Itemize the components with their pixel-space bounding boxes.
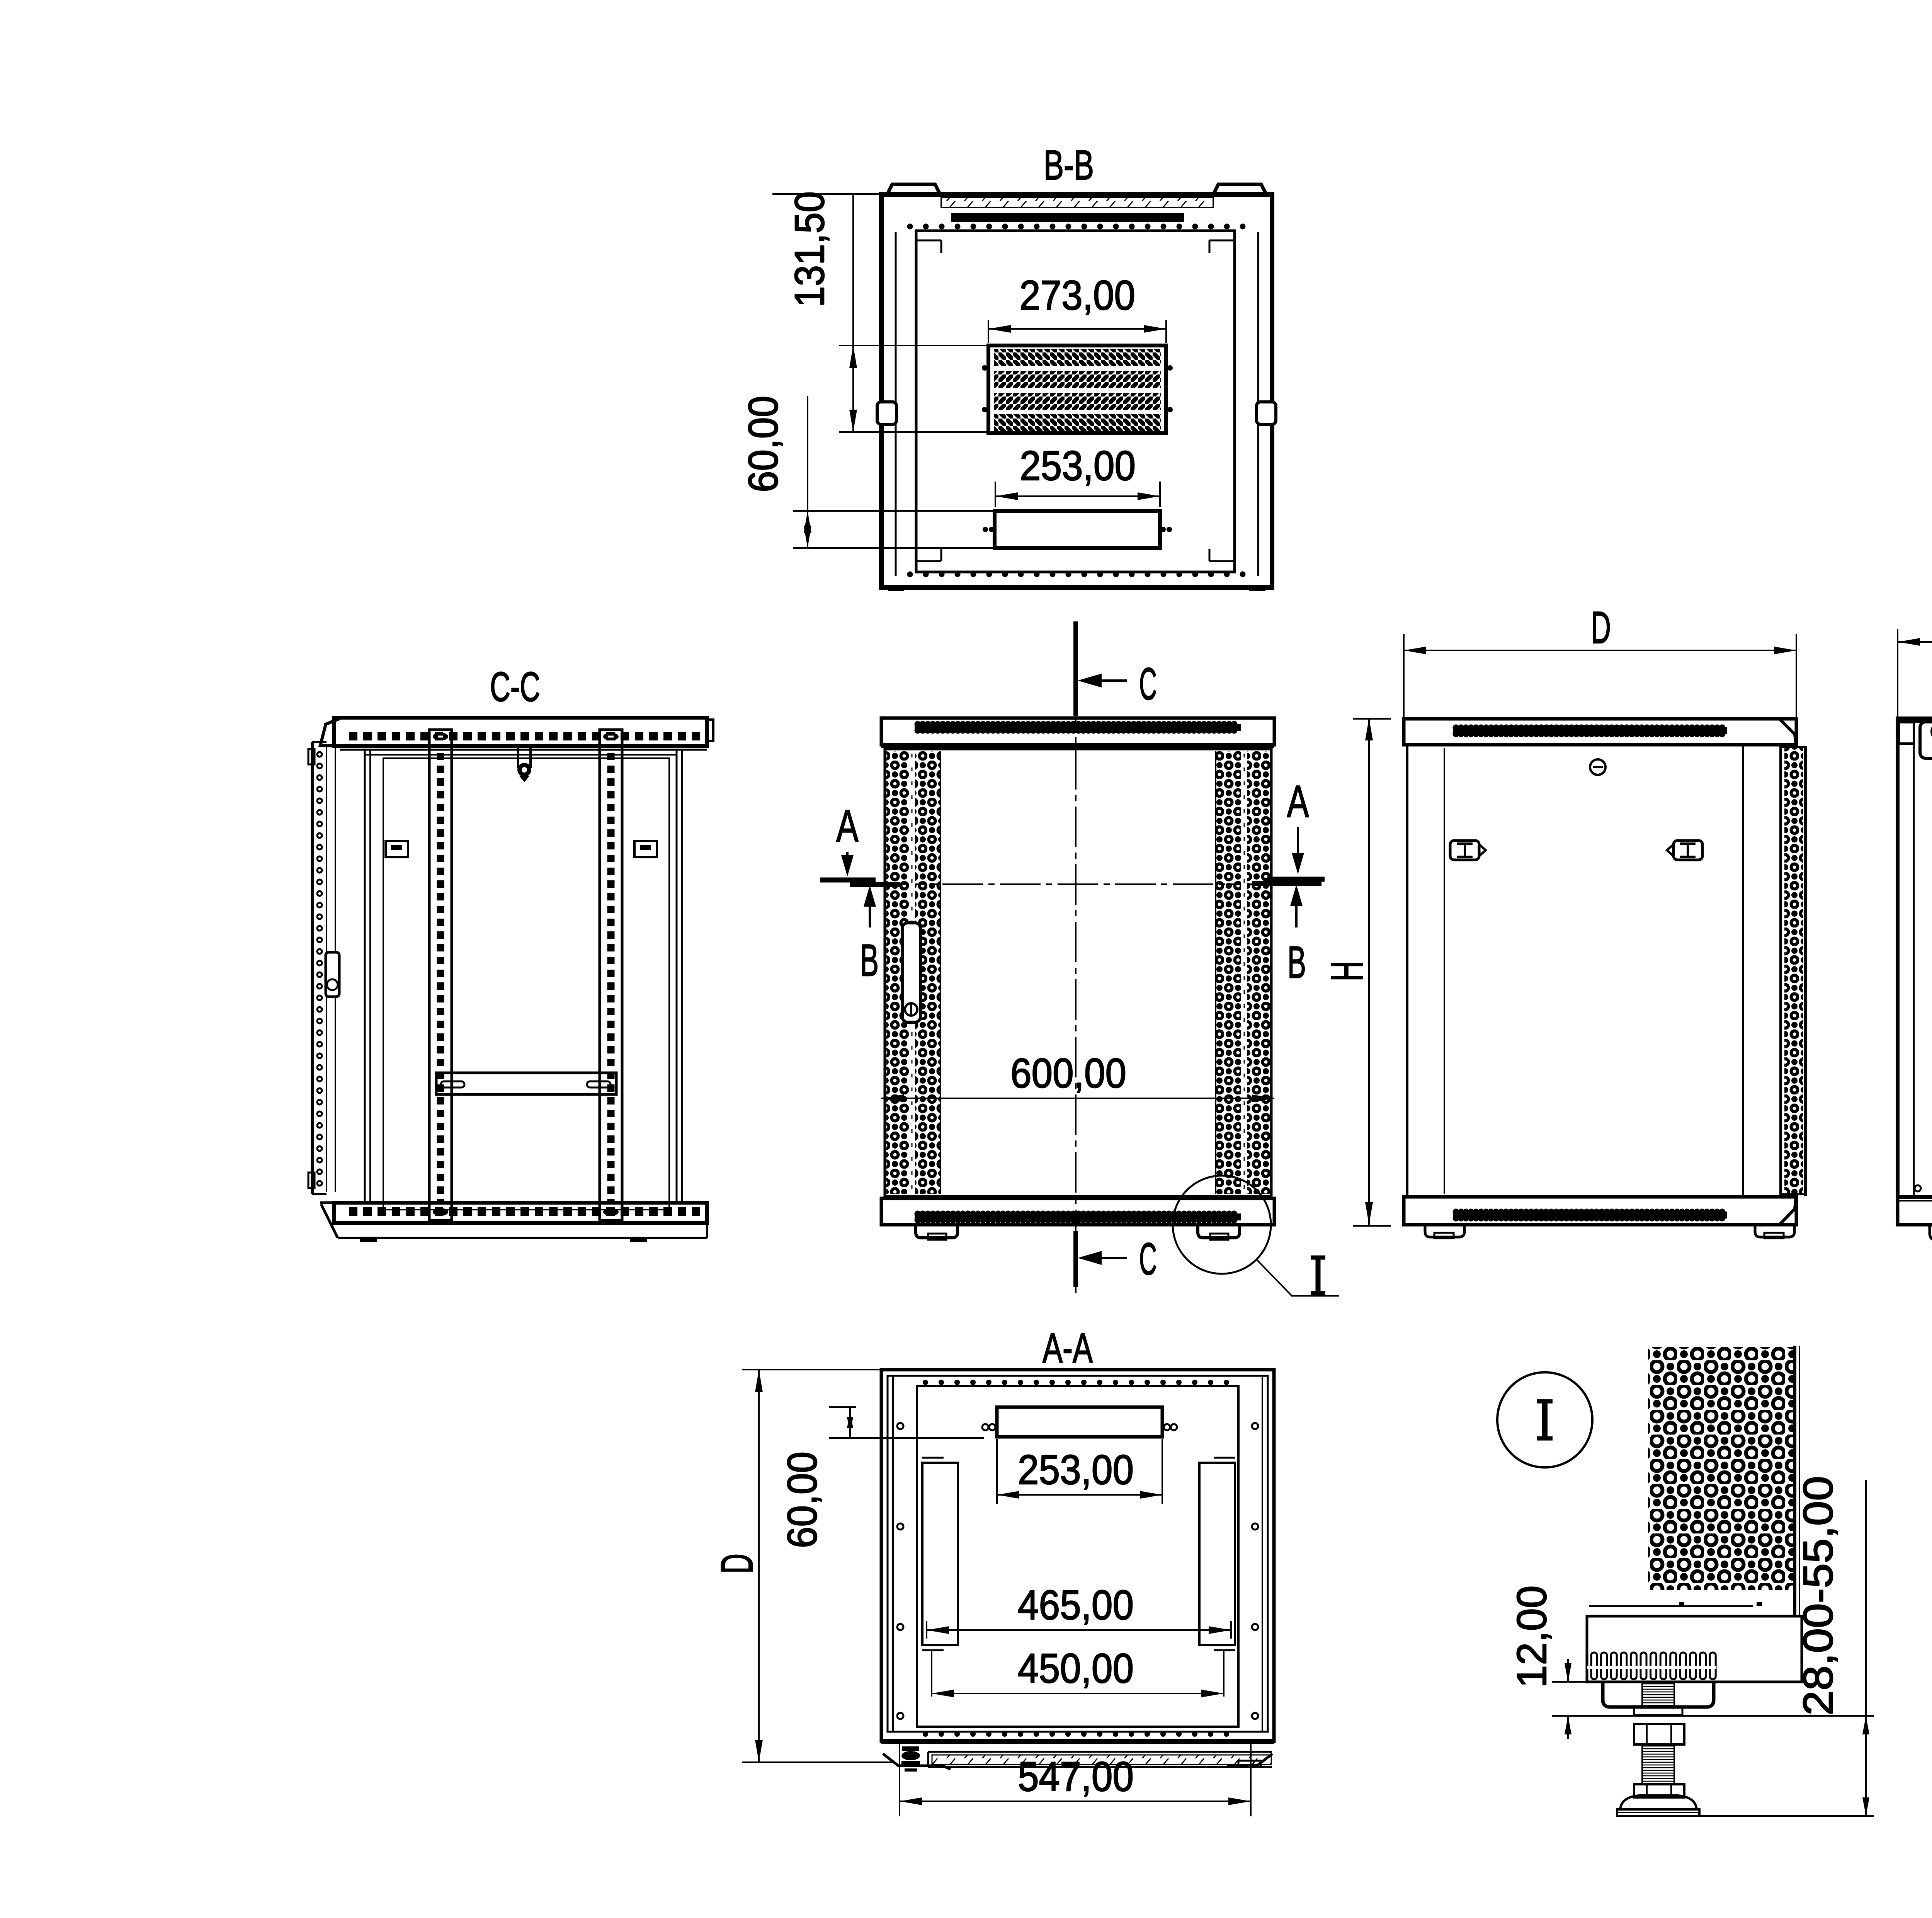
svg-text:28,00-55,00: 28,00-55,00 (1794, 1476, 1841, 1715)
svg-text:465,00: 465,00 (1018, 1581, 1134, 1628)
svg-text:B-B: B-B (1044, 141, 1094, 188)
svg-text:60,00: 60,00 (779, 1452, 825, 1548)
svg-text:B: B (860, 935, 879, 985)
svg-text:A: A (837, 800, 859, 851)
svg-text:60,00: 60,00 (740, 396, 786, 492)
svg-text:H: H (1321, 961, 1372, 982)
svg-text:131,50: 131,50 (786, 191, 833, 307)
svg-text:B: B (1287, 937, 1306, 987)
svg-text:450,00: 450,00 (1018, 1645, 1134, 1692)
svg-text:12,00: 12,00 (1508, 1586, 1555, 1688)
svg-text:253,00: 253,00 (1020, 442, 1136, 489)
svg-text:A-A: A-A (1043, 1324, 1093, 1371)
svg-text:C: C (1139, 1234, 1157, 1284)
svg-text:547,00: 547,00 (1018, 1753, 1134, 1800)
svg-text:273,00: 273,00 (1019, 272, 1135, 318)
svg-text:600,00: 600,00 (1010, 1050, 1126, 1096)
svg-text:253,00: 253,00 (1018, 1446, 1134, 1493)
svg-text:D: D (711, 1554, 762, 1574)
svg-text:C-C: C-C (490, 663, 540, 710)
svg-text:D: D (1591, 602, 1611, 653)
svg-text:C: C (1139, 659, 1157, 709)
svg-text:A: A (1287, 776, 1309, 827)
